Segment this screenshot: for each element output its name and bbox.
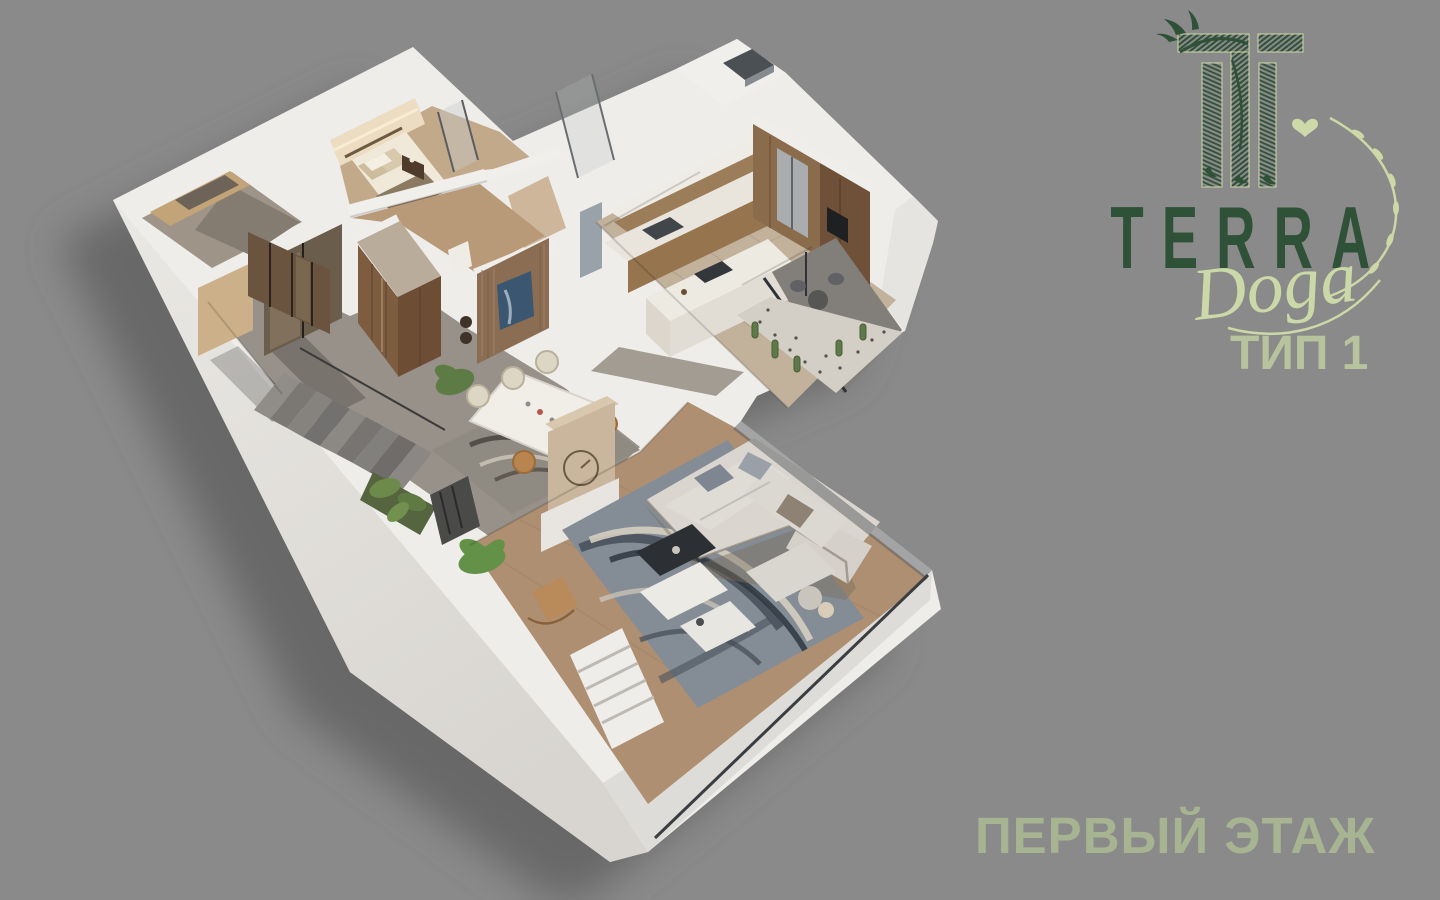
svg-text:ПЕРВЫЙ ЭТАЖ: ПЕРВЫЙ ЭТАЖ [975,806,1375,864]
svg-text:ТИП 1: ТИП 1 [1230,327,1368,380]
